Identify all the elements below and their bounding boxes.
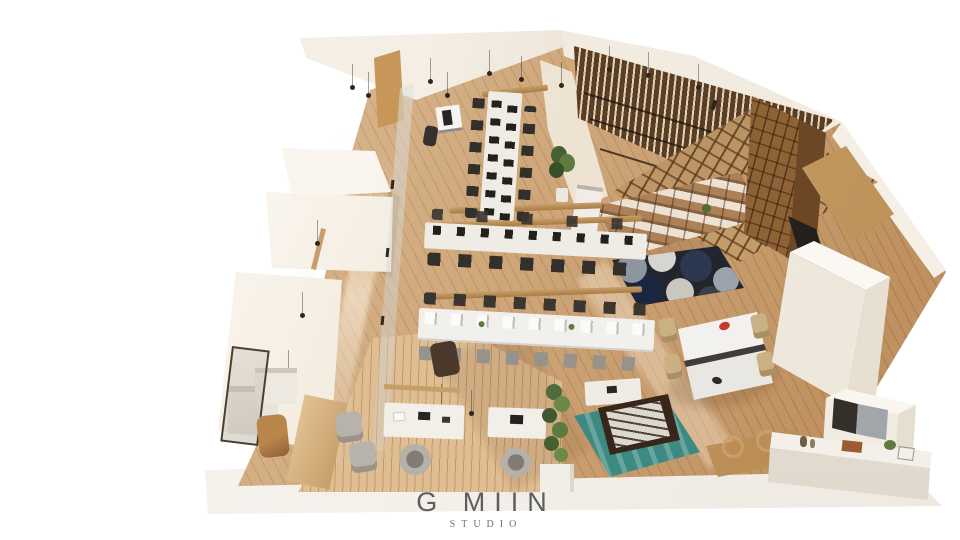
office-chair bbox=[398, 444, 432, 478]
pendant-light bbox=[609, 46, 610, 68]
plant-pot bbox=[556, 188, 568, 202]
office-3d-render: G MIIN STUDIO bbox=[0, 0, 960, 540]
wood-tray bbox=[841, 440, 862, 453]
pendant-light bbox=[561, 62, 562, 84]
counter-plant bbox=[884, 440, 896, 450]
pendant-light bbox=[521, 56, 522, 78]
pendant-light bbox=[489, 50, 490, 72]
laptop bbox=[418, 412, 430, 420]
desk-cluster-a bbox=[470, 90, 533, 221]
vase bbox=[810, 439, 815, 448]
pendant-light bbox=[317, 220, 318, 242]
pendant-light bbox=[302, 292, 303, 314]
tablet bbox=[442, 417, 450, 423]
papers bbox=[394, 413, 405, 421]
guest-chair bbox=[348, 440, 378, 473]
tan-office-chair bbox=[256, 414, 290, 459]
pendant-light bbox=[352, 64, 353, 86]
pendant-light bbox=[430, 58, 431, 80]
studio-logo-text: G MIIN bbox=[416, 487, 556, 517]
pendant-light bbox=[368, 72, 369, 94]
easel-board bbox=[435, 104, 462, 133]
pendant-light bbox=[447, 72, 448, 94]
small-desk bbox=[487, 407, 546, 439]
desk-cluster-b bbox=[422, 212, 647, 288]
plant-column bbox=[540, 384, 576, 494]
laptop bbox=[607, 386, 617, 394]
vase bbox=[800, 436, 807, 447]
guest-chair bbox=[334, 410, 364, 443]
monitor bbox=[510, 415, 523, 424]
small-desk bbox=[383, 403, 464, 440]
artwork bbox=[442, 110, 453, 126]
pendant-light bbox=[698, 64, 699, 86]
bench-plant bbox=[702, 204, 711, 213]
caption: G MIIN STUDIO bbox=[6, 487, 960, 530]
wire-basket bbox=[897, 446, 915, 461]
potted-plant bbox=[547, 146, 577, 204]
office-chair bbox=[500, 448, 532, 480]
studio-logo-subtext: STUDIO bbox=[6, 519, 960, 530]
armchair-brown bbox=[429, 340, 461, 378]
bar-stool bbox=[722, 436, 744, 458]
pendant-light bbox=[648, 52, 649, 74]
pendant-light bbox=[471, 390, 472, 412]
